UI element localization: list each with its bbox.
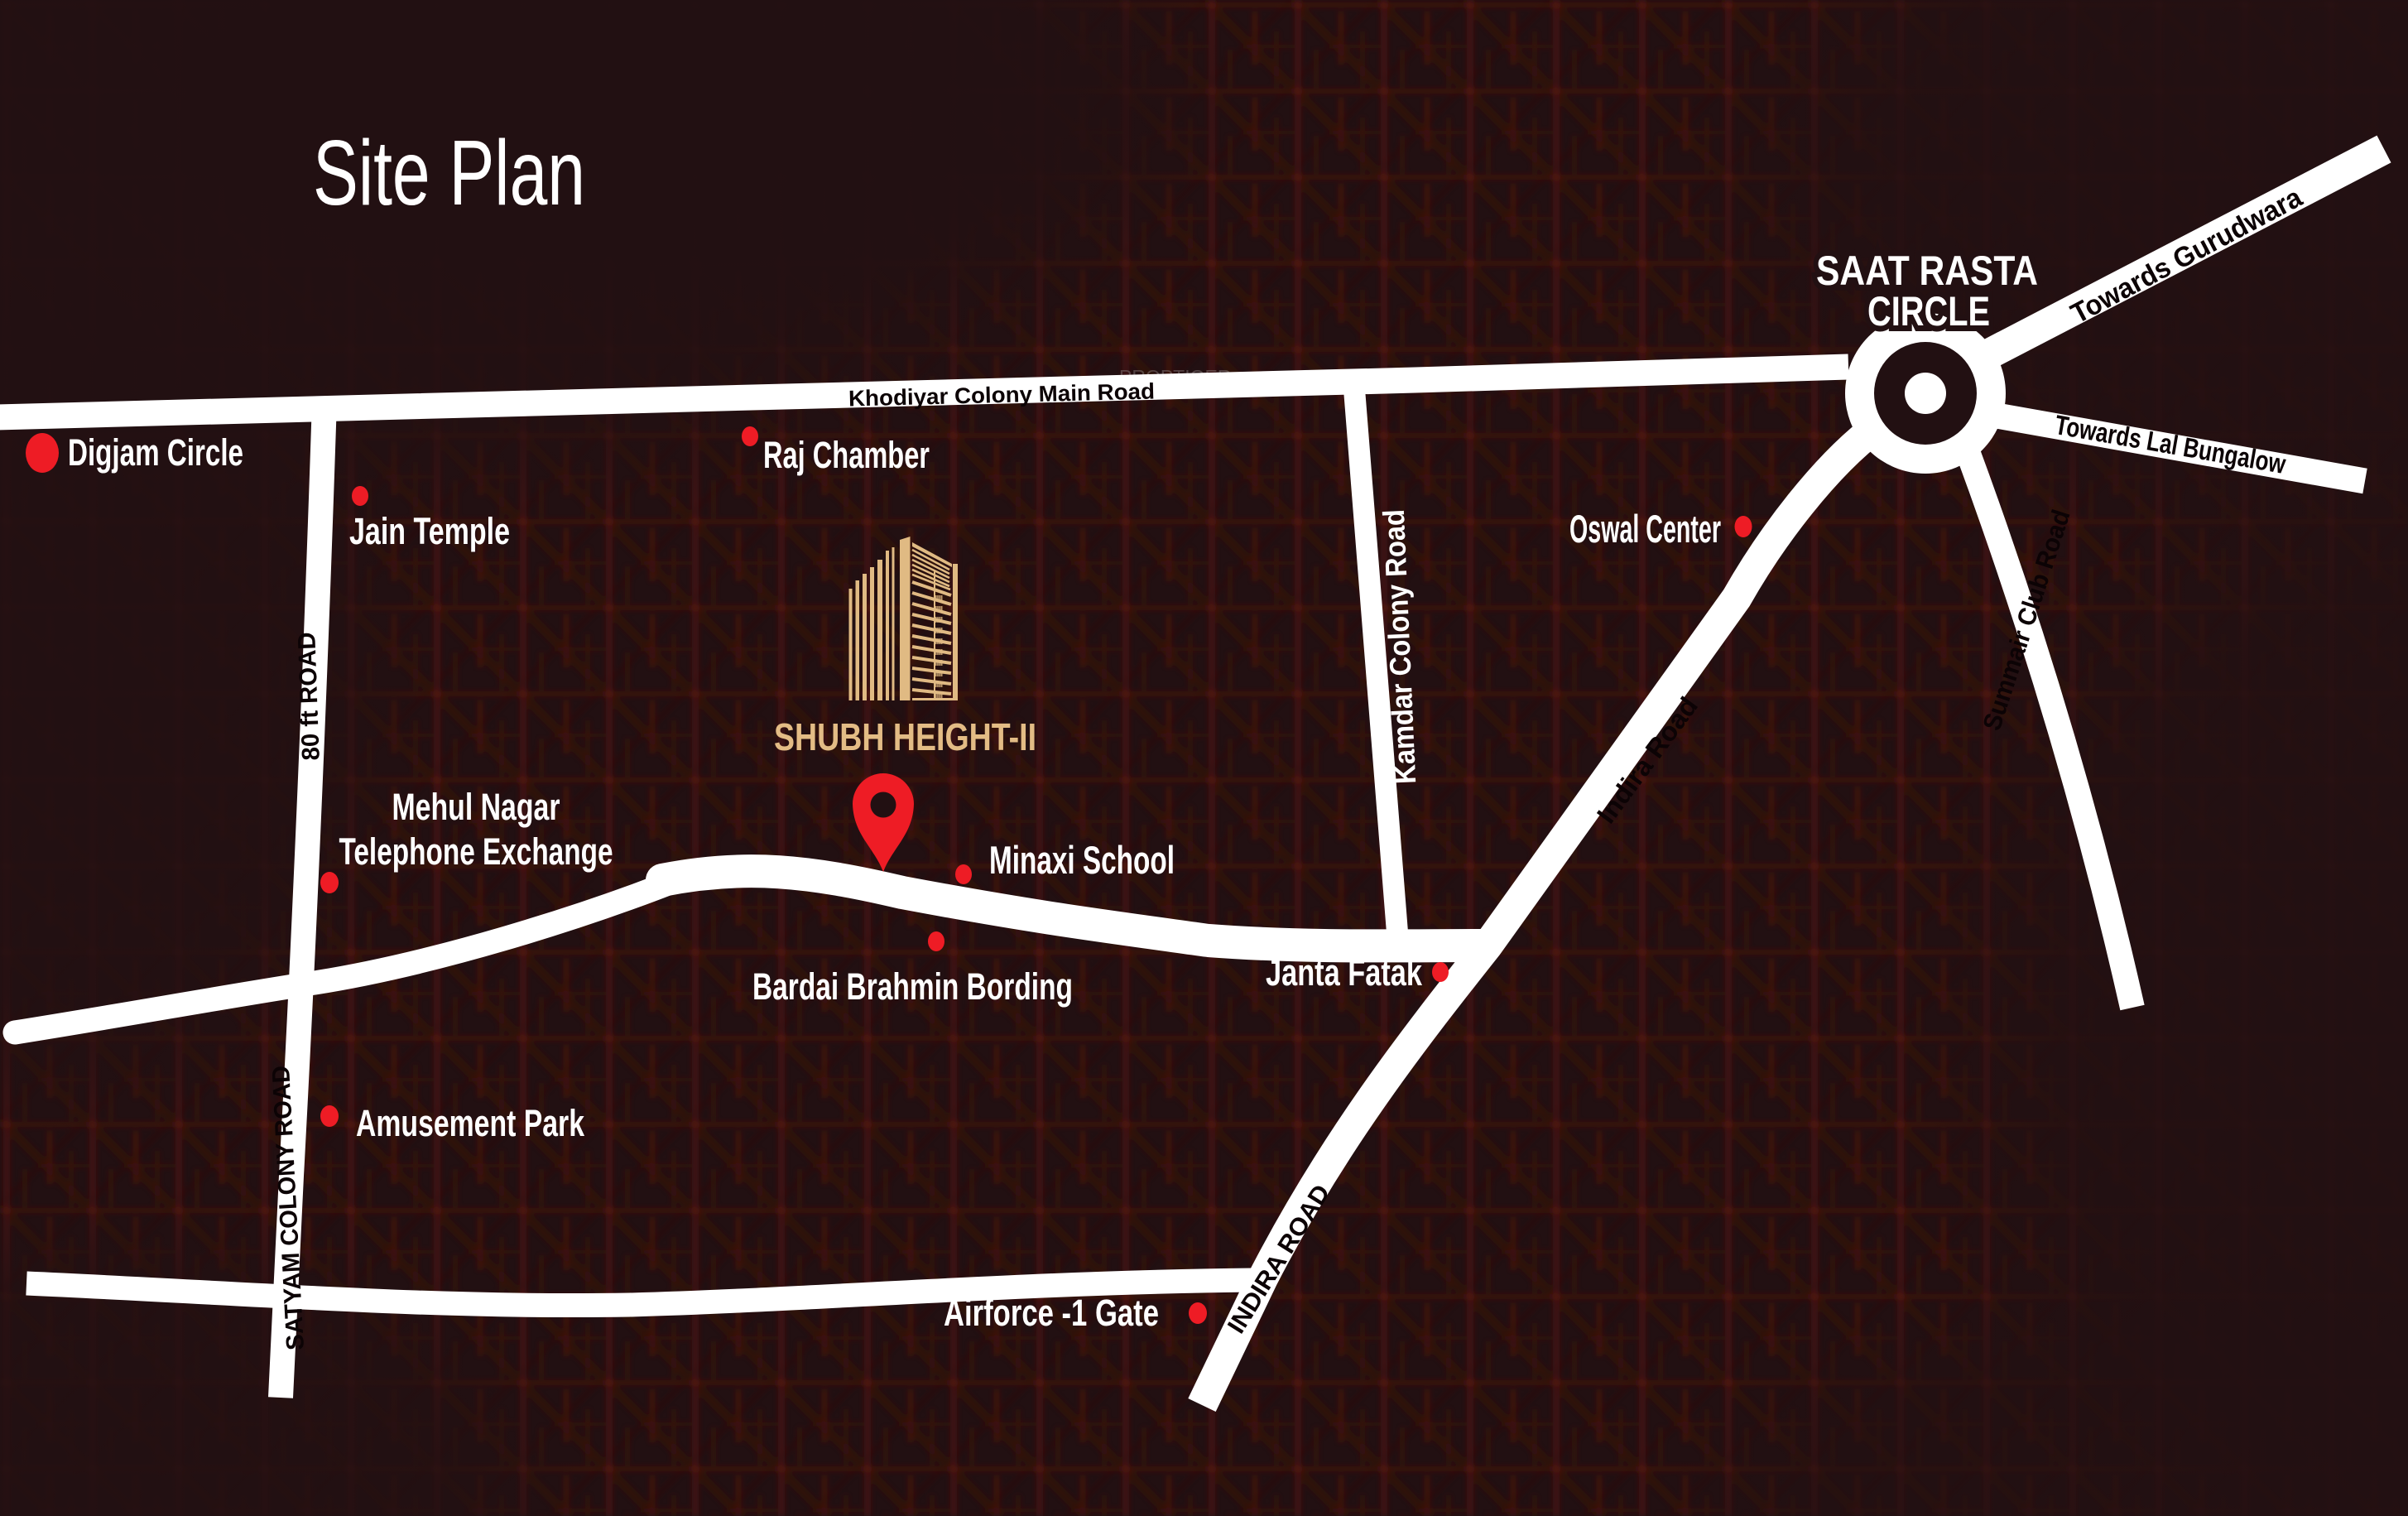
svg-text:Bardai Brahmin Bording: Bardai Brahmin Bording [752,965,1073,1008]
svg-text:SAAT RASTA: SAAT RASTA [1816,248,2038,294]
svg-text:Mehul Nagar: Mehul Nagar [392,786,560,828]
svg-text:Minaxi School: Minaxi School [989,838,1175,882]
svg-text:Raj Chamber: Raj Chamber [763,434,930,476]
svg-text:Oswal Center: Oswal Center [1569,507,1721,551]
svg-text:Amusement Park: Amusement Park [356,1102,585,1144]
svg-text:CIRCLE: CIRCLE [1867,288,1990,334]
svg-text:Jain Temple: Jain Temple [349,510,510,552]
svg-text:Digjam Circle: Digjam Circle [68,431,243,474]
svg-text:Site Plan: Site Plan [313,122,585,224]
svg-text:Telephone Exchange: Telephone Exchange [339,830,613,873]
svg-text:Janta Fatak: Janta Fatak [1266,951,1423,994]
svg-text:80 ft ROAD: 80 ft ROAD [293,632,324,761]
svg-text:Airforce -1 Gate: Airforce -1 Gate [944,1292,1159,1334]
svg-text:SHUBH HEIGHT-II: SHUBH HEIGHT-II [774,715,1036,758]
